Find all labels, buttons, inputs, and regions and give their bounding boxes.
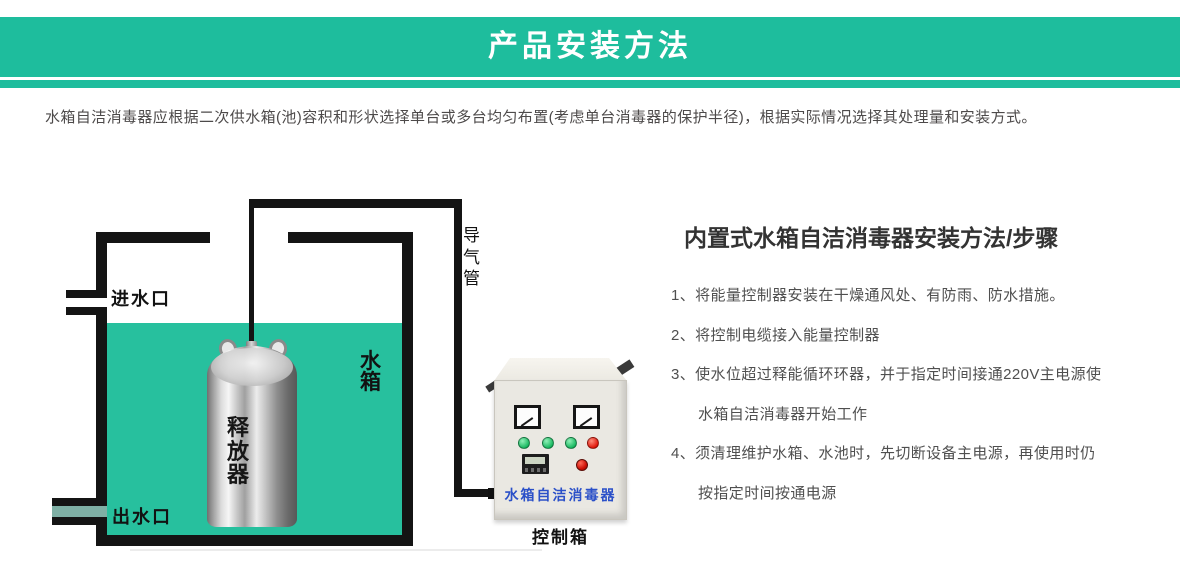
step-line-3: 3、使水位超过释能循环环器，并于指定时间接通220V主电源使 [671,355,1166,395]
step-line-1: 1、将能量控制器安装在干燥通风处、有防雨、防水措施。 [671,276,1166,316]
analog-meter-icon-left [514,405,541,429]
control-box-brand-label: 水箱自洁消毒器 [495,485,626,505]
analog-meter-icon-right [573,405,600,429]
control-box-top-face [494,358,627,381]
tank-wall-top-left [96,232,210,243]
air-duct-pipe-vertical-right [454,199,462,497]
tank-wall-left-middle [96,314,107,498]
tank-label: 水箱 [360,351,386,393]
inlet-label: 进水口 [111,285,171,311]
releaser-cylinder: 释放器 [207,346,297,527]
page: 产品安装方法 水箱自洁消毒器应根据二次供水箱(池)容积和形状选择单台或多台均匀布… [0,0,1180,561]
ground-shadow [130,549,542,551]
indicator-light-green-2 [542,437,554,449]
timer-module-icon [522,454,549,474]
instructions-steps: 1、将能量控制器安装在干燥通风处、有防雨、防水措施。 2、将控制电缆接入能量控制… [671,276,1166,513]
meter-needle-icon [580,417,593,427]
outlet-pipe-top-wall [52,498,107,506]
control-box: 水箱自洁消毒器 [494,380,627,520]
tank-wall-top-right [288,232,413,243]
tank-wall-bottom [96,535,413,546]
outlet-pipe-bottom-wall [52,517,107,525]
step-line-3-continued: 水箱自洁消毒器开始工作 [671,395,1166,435]
intro-text: 水箱自洁消毒器应根据二次供水箱(池)容积和形状选择单台或多台均匀布置(考虑单台消… [45,106,1125,127]
step-line-4: 4、须清理维护水箱、水池时，先切断设备主电源，再使用时仍 [671,434,1166,474]
inlet-pipe-top-wall [66,290,107,298]
step-line-4-continued: 按指定时间按通电源 [671,474,1166,514]
instructions-heading: 内置式水箱自洁消毒器安装方法/步骤 [684,219,1058,253]
outlet-label: 出水口 [112,503,172,529]
timer-lcd-icon [525,457,545,464]
header-divider-stripe [0,80,1180,88]
air-duct-pipe-horizontal [249,199,462,208]
air-duct-label: 导气管 [463,225,484,290]
inlet-pipe-bottom-wall [66,307,107,315]
timer-buttons-icon [525,468,546,472]
header-banner: 产品安装方法 [0,17,1180,77]
indicator-light-green-3 [565,437,577,449]
tank-wall-left-upper [96,232,107,291]
page-title: 产品安装方法 [0,17,1180,77]
outlet-pipe-water [52,506,107,517]
control-box-caption: 控制箱 [494,523,627,548]
meter-needle-icon [521,417,534,427]
releaser-label: 释放器 [227,416,255,487]
indicator-light-red [587,437,599,449]
indicator-light-green-1 [518,437,530,449]
step-line-2: 2、将控制电缆接入能量控制器 [671,316,1166,356]
power-button-icon [576,459,588,471]
tank-wall-right [402,232,413,546]
